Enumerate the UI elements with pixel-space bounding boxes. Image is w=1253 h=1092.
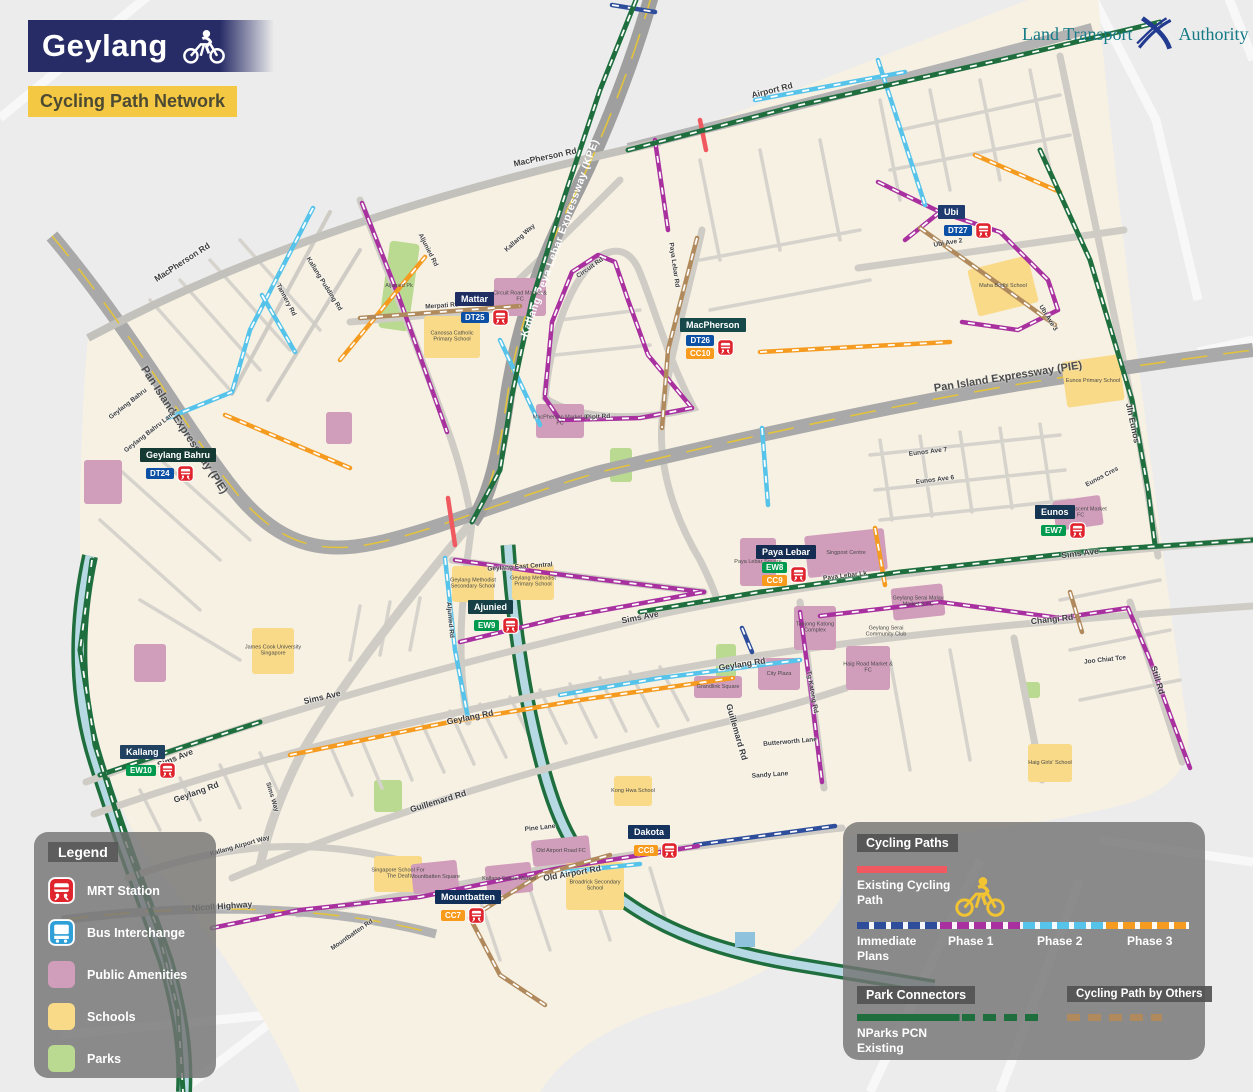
lta-swoosh-icon [1135, 16, 1177, 52]
map-subtitle: Cycling Path Network [28, 86, 237, 117]
line-badge: DT24 [146, 468, 174, 479]
place-label: Singpost Centre [817, 550, 875, 556]
place-label: Tanjong Katong Complex [786, 622, 844, 635]
legend-items: MRT StationBus InterchangePublic Ameniti… [48, 877, 202, 1072]
lta-logo-right: Authority [1179, 24, 1249, 45]
place-label: Aljunied Pk [370, 283, 428, 289]
place-label: Old Airport Road FC [532, 848, 590, 854]
mrt-station-mattar: MattarDT25 [455, 292, 509, 326]
mrt-icon [502, 617, 519, 634]
place-label: Kallang Estate Market [480, 876, 538, 882]
cycling-paths-panel: Cycling Paths Existing Cycling Path Imme… [843, 822, 1205, 1060]
phase1-label: Phase 1 [948, 934, 993, 949]
mrt-station-eunos: EunosEW7 [1035, 505, 1086, 539]
station-name: Dakota [628, 825, 670, 839]
mrt-station-mountbatten: MountbattenCC7 [435, 890, 501, 924]
station-name: Kallang [120, 745, 165, 759]
mrt-station-ubi: UbiDT27 [938, 205, 992, 239]
legend-item-bus: Bus Interchange [48, 919, 202, 946]
legend-item-label: Public Amenities [87, 968, 187, 982]
legend-item-label: Parks [87, 1052, 121, 1066]
legend-panel: Legend MRT StationBus InterchangePublic … [34, 832, 216, 1078]
line-badge: DT25 [461, 312, 489, 323]
line-badge: EW9 [474, 620, 499, 631]
legend-cyclist-icon [951, 874, 1009, 923]
place-label: City Plaza [750, 671, 808, 677]
mrt-icon [177, 465, 194, 482]
station-name: Ubi [938, 205, 965, 219]
station-name: Mountbatten [435, 890, 501, 904]
phase-line-swatches [857, 922, 1189, 929]
phase2-swatch [1023, 922, 1106, 929]
mrt-icon [717, 339, 734, 356]
line-badge: CC10 [686, 348, 714, 359]
cyclist-icon [178, 28, 230, 64]
legend-item-label: Schools [87, 1010, 136, 1024]
mrt-icon [790, 566, 807, 583]
legend-item-amenities: Public Amenities [48, 961, 202, 988]
phase2-label: Phase 2 [1037, 934, 1082, 949]
mrt-station-paya-lebar: Paya LebarEW8CC9 [756, 545, 816, 586]
mrt-station-ajunied: AjuniedEW9 [468, 600, 519, 634]
place-label: Eunos Primary School [1064, 378, 1122, 384]
place-label: Maha Bodhi School [974, 283, 1032, 289]
place-label: Canossa Catholic Primary School [423, 331, 481, 344]
geylang-cycling-map: { "header": {"title": "Geylang", "subtit… [0, 0, 1253, 1092]
line-badge: EW7 [1041, 525, 1066, 536]
line-badge: EW10 [126, 765, 156, 776]
legend-item-label: MRT Station [87, 884, 160, 898]
phase1-swatch [940, 922, 1023, 929]
station-name: Mattar [455, 292, 494, 306]
line-badge: CC8 [634, 845, 658, 856]
mrt-station-dakota: DakotaCC8 [628, 825, 678, 859]
line-badge: CC9 [762, 575, 787, 586]
mrt-icon [492, 309, 509, 326]
existing-path-swatch [857, 866, 947, 873]
legend-title: Legend [48, 842, 118, 862]
mrt-icon [159, 762, 176, 779]
place-label: Grandlink Square [689, 684, 747, 690]
immediate-swatch [857, 922, 940, 929]
place-label: Broadrick Secondary School [566, 880, 624, 893]
park-connectors-title: Park Connectors [857, 986, 975, 1004]
station-name: Eunos [1035, 505, 1075, 519]
map-title: Geylang [42, 28, 168, 64]
place-label: Geylang Serai Malay Market & FC [889, 596, 947, 609]
mrt-icon [661, 842, 678, 859]
line-badge: EW8 [762, 562, 787, 573]
place-label: Kong Hwa School [604, 788, 662, 794]
station-name: Geylang Bahru [140, 448, 216, 462]
nparks-pcn-label: NParks PCN Existing [857, 1026, 943, 1056]
place-label: Geylang Serai Community Club [857, 626, 915, 639]
mrt-icon [48, 877, 75, 904]
mrt-icon [1069, 522, 1086, 539]
mrt-station-kallang: KallangEW10 [120, 745, 176, 779]
place-label: Singapore School For The Deaf [369, 868, 427, 881]
path-by-others-title: Cycling Path by Others [1067, 986, 1212, 1002]
legend-item-schools: Schools [48, 1003, 202, 1030]
place-label: Geylang Methodist Secondary School [444, 578, 502, 591]
lta-logo: Land Transport Authority [1022, 16, 1249, 52]
parks-swatch [48, 1045, 75, 1072]
station-name: MacPherson [680, 318, 746, 332]
place-label: MacPherson Market & FC [531, 415, 589, 428]
line-badge: DT26 [686, 335, 714, 346]
bus-icon [48, 919, 75, 946]
mrt-icon [468, 907, 485, 924]
place-label: James Cook University Singapore [244, 645, 302, 658]
legend-item-parks: Parks [48, 1045, 202, 1072]
station-name: Ajunied [468, 600, 513, 614]
mrt-station-macpherson: MacPhersonDT26CC10 [680, 318, 746, 359]
others-path-swatch [1067, 1014, 1162, 1021]
amenities-swatch [48, 961, 75, 988]
station-name: Paya Lebar [756, 545, 816, 559]
line-badge: DT27 [944, 225, 972, 236]
nparks-pcn-swatch [857, 1014, 1043, 1021]
phase3-label: Phase 3 [1127, 934, 1172, 949]
line-badge: CC7 [441, 910, 465, 921]
schools-swatch [48, 1003, 75, 1030]
place-label: Haig Road Market & FC [839, 662, 897, 675]
existing-path-label: Existing Cycling Path [857, 878, 952, 908]
cycling-paths-title: Cycling Paths [857, 834, 958, 852]
phase3-swatch [1106, 922, 1189, 929]
immediate-label: Immediate Plans [857, 934, 929, 964]
place-label: Haig Girls' School [1021, 760, 1079, 766]
place-label: Geylang Methodist Primary School [504, 576, 562, 589]
title-banner: Geylang [28, 20, 274, 72]
lta-logo-left: Land Transport [1022, 24, 1133, 45]
legend-item-mrt: MRT Station [48, 877, 202, 904]
mrt-icon [975, 222, 992, 239]
road-label: Pipit Rd [586, 413, 611, 421]
legend-item-label: Bus Interchange [87, 926, 185, 940]
mrt-station-geylang-bahru: Geylang BahruDT24 [140, 448, 216, 482]
